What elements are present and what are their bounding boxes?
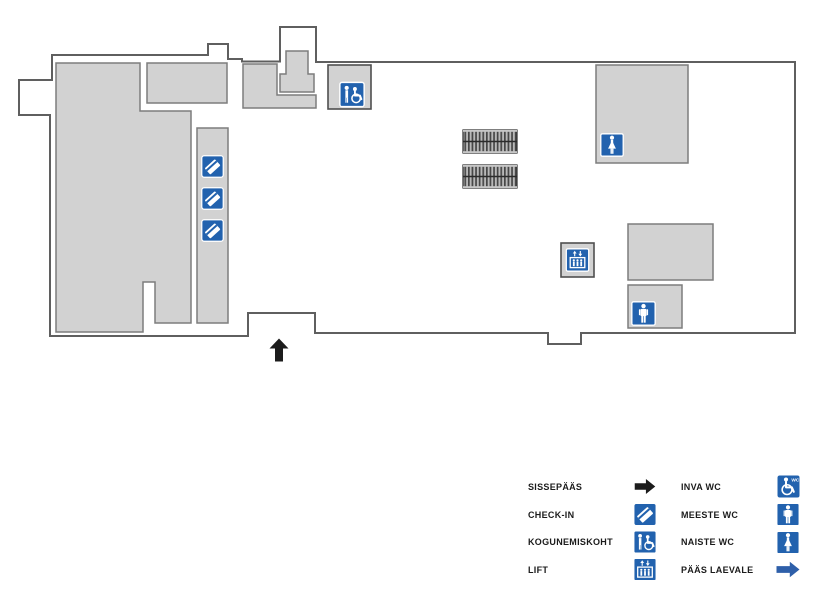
accessible-wc-icon [775, 474, 801, 499]
legend-label-inva-wc: INVA WC [681, 482, 775, 492]
terminal-floor-plan-page: WC [0, 0, 822, 595]
womens-wc-icon [775, 530, 801, 555]
stairs-block-2 [463, 165, 517, 188]
legend-label-kogunemiskoht: KOGUNEMISKOHT [528, 537, 632, 547]
room-upper-tower [280, 51, 314, 92]
room-top-middle [147, 63, 227, 103]
lift-icon [566, 249, 588, 271]
mens-wc-icon [632, 302, 655, 325]
assembly-point-icon [340, 82, 364, 106]
lift-icon [632, 557, 658, 582]
legend-label-naiste-wc: NAISTE WC [681, 537, 775, 547]
legend-label-check-in: CHECK-IN [528, 510, 632, 520]
ticket-icon [202, 188, 223, 209]
ticket-icon [202, 220, 223, 241]
legend-label-lift: LIFT [528, 565, 632, 575]
entrance-arrow-icon [632, 478, 658, 495]
ticket-icon [202, 156, 223, 177]
legend-label-paas-laevale: PÄÄS LAEVALE [681, 565, 775, 575]
ship-access-arrow-icon [775, 561, 801, 578]
assembly-point-icon [632, 530, 658, 554]
ticket-icon [632, 502, 658, 527]
room-mid-right [628, 224, 713, 280]
legend: SISSEPÄÄS INVA WC CHECK-IN MEESTE WC KOG… [528, 473, 801, 584]
floor-plan: WC [0, 0, 822, 430]
legend-label-sissepaas: SISSEPÄÄS [528, 482, 632, 492]
mens-wc-icon [775, 502, 801, 527]
womens-wc-icon [601, 134, 623, 156]
entrance-arrow-icon [270, 339, 289, 362]
stairs-block-1 [463, 130, 517, 153]
legend-label-meeste-wc: MEESTE WC [681, 510, 775, 520]
